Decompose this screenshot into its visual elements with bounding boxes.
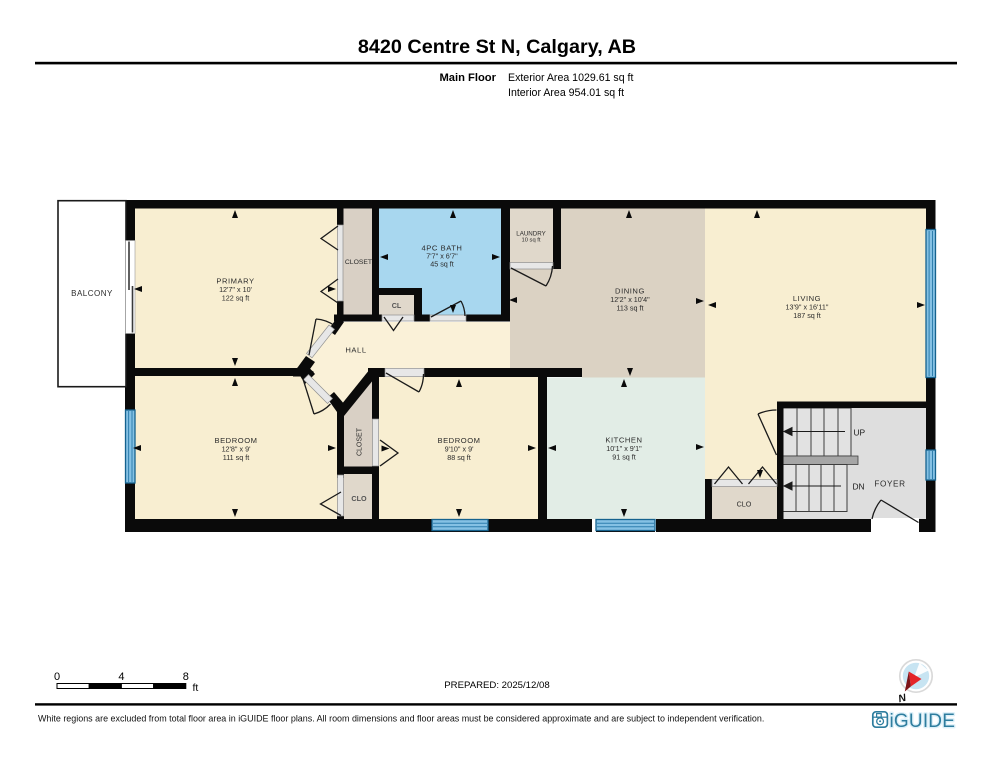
svg-text:10 sq ft: 10 sq ft [521, 238, 540, 244]
svg-text:8: 8 [183, 671, 189, 683]
svg-text:ft: ft [193, 682, 199, 694]
svg-text:FOYER: FOYER [874, 480, 905, 489]
svg-text:iGUIDE: iGUIDE [890, 711, 956, 732]
svg-text:BALCONY: BALCONY [71, 289, 113, 298]
svg-text:PREPARED: 2025/12/08: PREPARED: 2025/12/08 [444, 680, 549, 691]
svg-text:LAUNDRY: LAUNDRY [516, 231, 545, 238]
svg-text:91 sq ft: 91 sq ft [612, 453, 636, 462]
svg-text:88 sq ft: 88 sq ft [447, 453, 471, 462]
svg-text:Interior Area 954.01 sq ft: Interior Area 954.01 sq ft [508, 87, 624, 99]
svg-text:111 sq ft: 111 sq ft [223, 453, 250, 462]
svg-text:4: 4 [118, 671, 124, 683]
svg-text:45 sq ft: 45 sq ft [430, 259, 454, 268]
svg-text:CLOSET: CLOSET [357, 427, 364, 456]
svg-text:CLO: CLO [737, 500, 752, 509]
svg-text:CLO: CLO [351, 494, 367, 503]
svg-text:187 sq ft: 187 sq ft [793, 311, 821, 320]
svg-text:White regions are excluded fro: White regions are excluded from total fl… [38, 714, 764, 724]
svg-text:DN: DN [853, 482, 865, 492]
svg-text:113 sq ft: 113 sq ft [616, 303, 643, 312]
svg-text:122 sq ft: 122 sq ft [222, 293, 250, 302]
svg-text:0: 0 [54, 671, 60, 683]
svg-text:CL: CL [392, 301, 402, 310]
svg-text:8420 Centre St N, Calgary, AB: 8420 Centre St N, Calgary, AB [358, 36, 636, 58]
svg-text:Main Floor: Main Floor [439, 72, 496, 84]
svg-text:CLOSET: CLOSET [345, 259, 372, 266]
svg-text:UP: UP [854, 428, 866, 438]
svg-text:HALL: HALL [345, 346, 366, 355]
svg-text:Exterior Area 1029.61 sq ft: Exterior Area 1029.61 sq ft [508, 72, 633, 84]
